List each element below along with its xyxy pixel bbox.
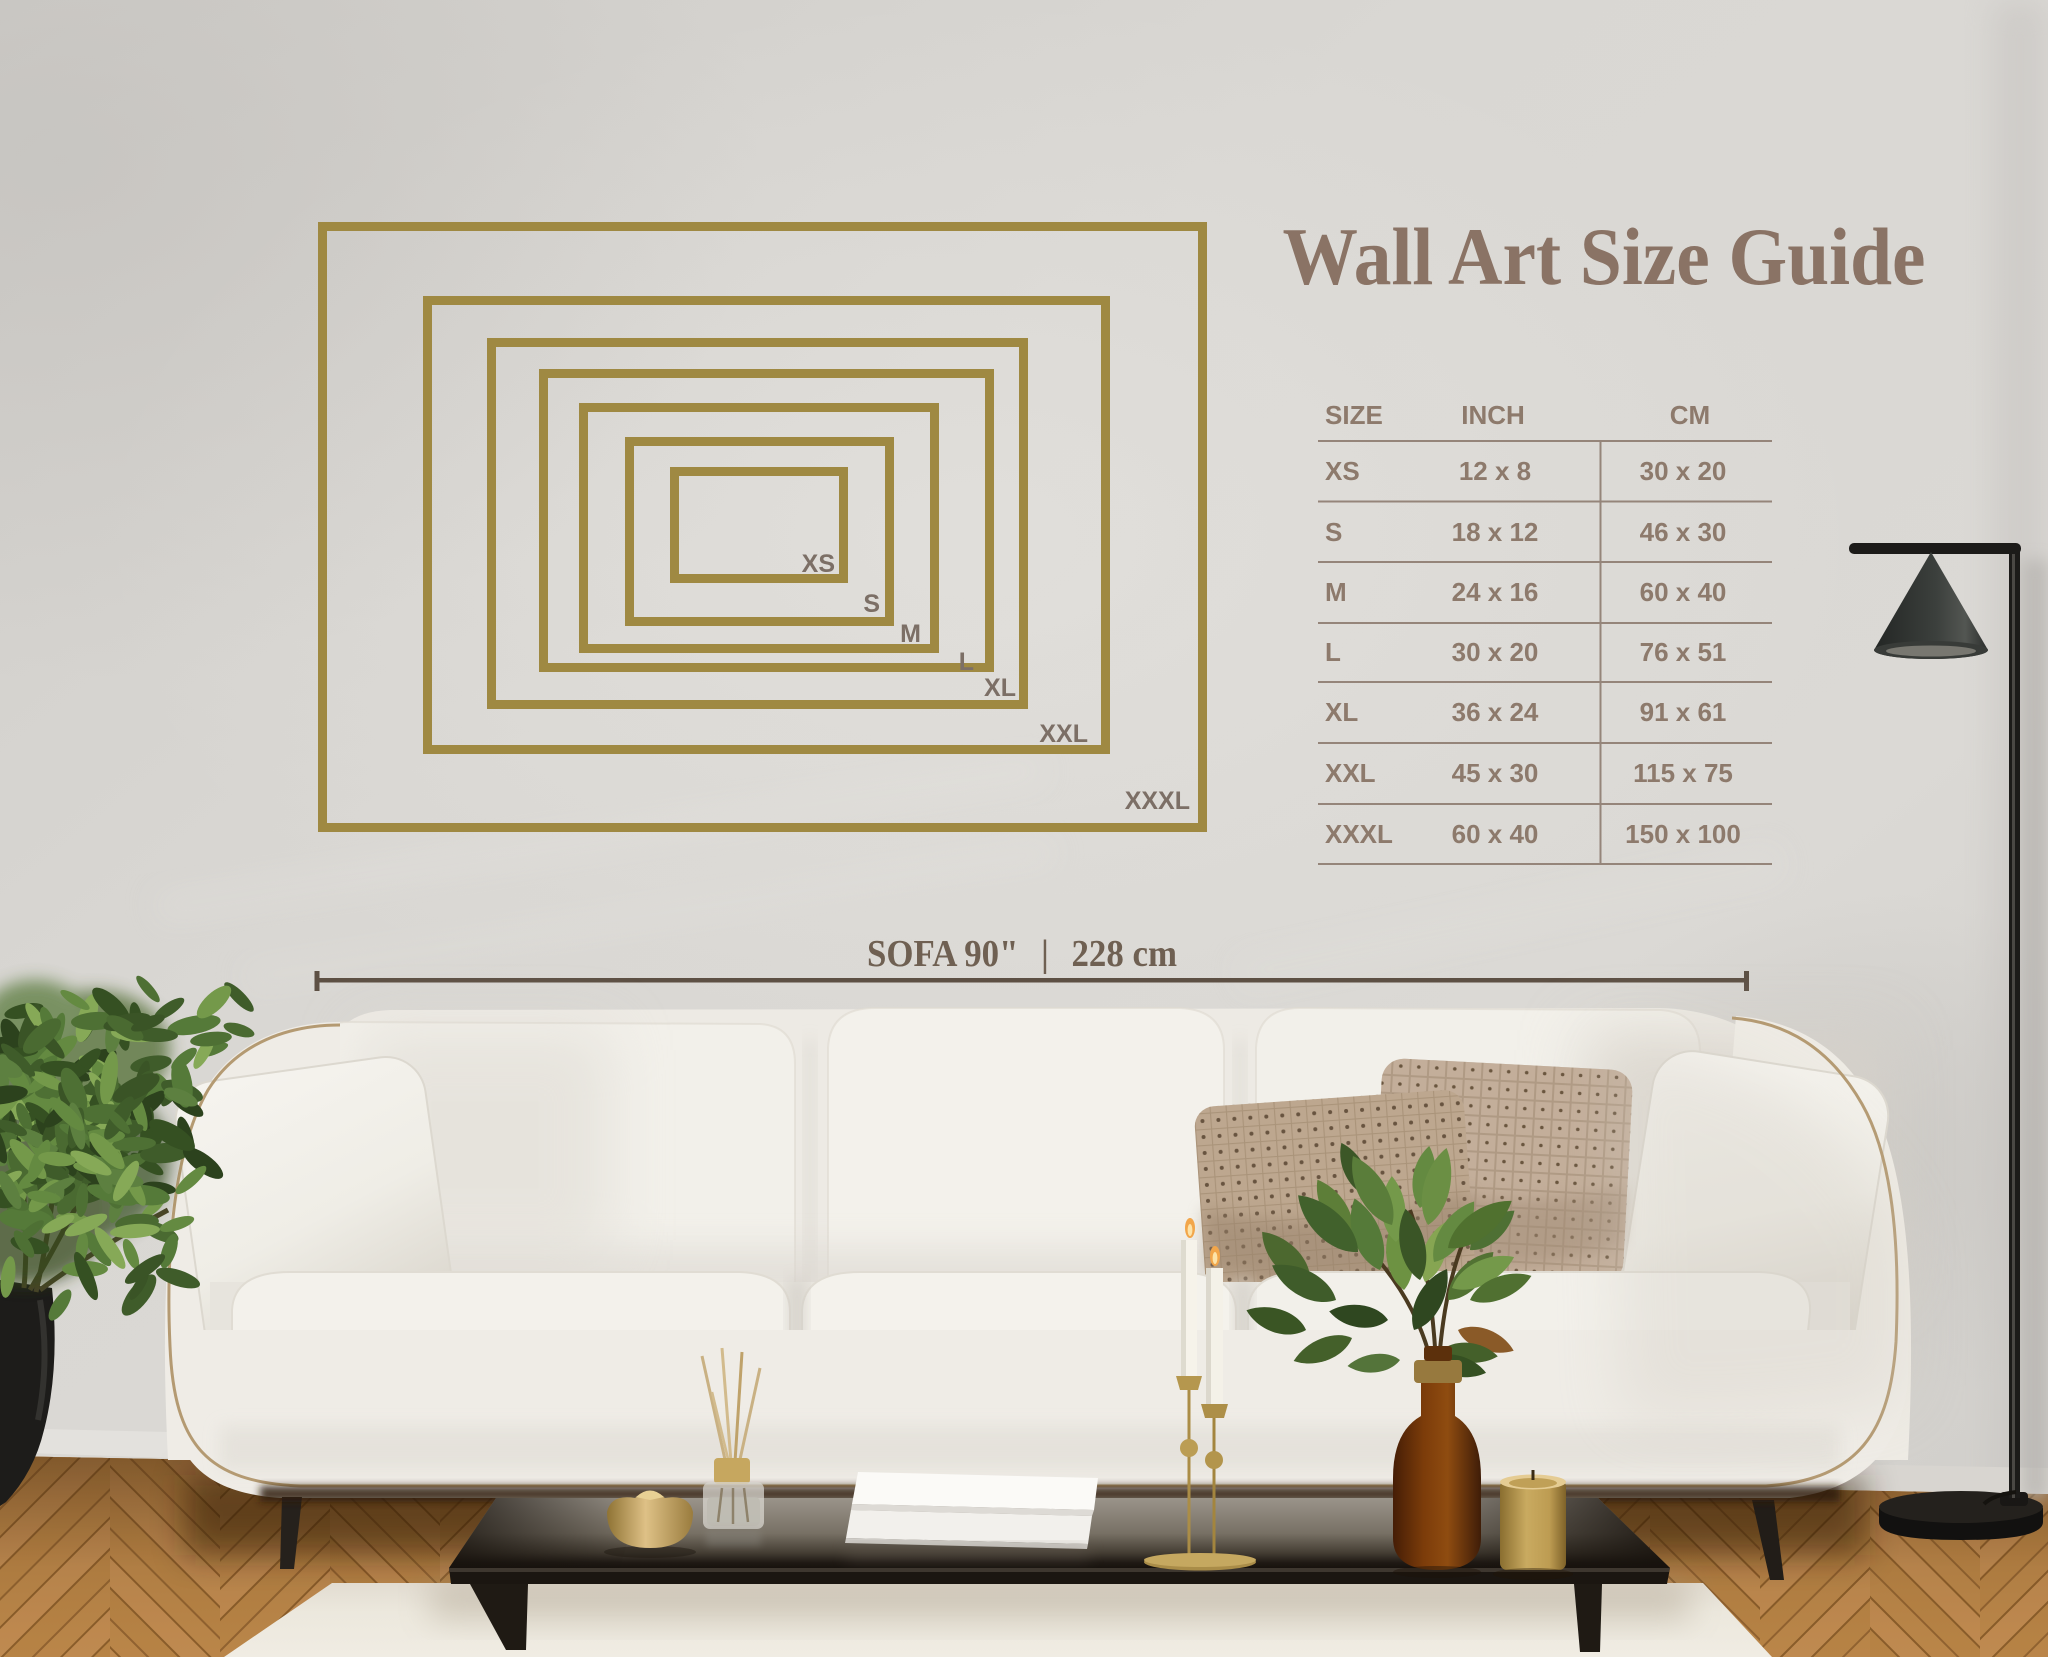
svg-text:46 x 30: 46 x 30 [1640, 517, 1727, 547]
svg-text:12 x 8: 12 x 8 [1459, 456, 1531, 486]
svg-text:CM: CM [1670, 400, 1710, 430]
svg-text:24 x 16: 24 x 16 [1452, 577, 1539, 607]
svg-text:INCH: INCH [1461, 400, 1525, 430]
svg-text:18 x 12: 18 x 12 [1452, 517, 1539, 547]
svg-text:150 x 100: 150 x 100 [1625, 819, 1741, 849]
svg-text:76 x 51: 76 x 51 [1640, 637, 1727, 667]
svg-text:XL: XL [1325, 697, 1358, 727]
svg-text:XL: XL [984, 674, 1016, 702]
svg-text:M: M [900, 620, 921, 648]
svg-text:91 x 61: 91 x 61 [1640, 697, 1727, 727]
svg-text:XXXL: XXXL [1125, 787, 1190, 815]
svg-text:XS: XS [802, 550, 835, 578]
svg-text:L: L [959, 648, 974, 676]
svg-text:SIZE: SIZE [1325, 400, 1383, 430]
svg-text:M: M [1325, 577, 1347, 607]
svg-text:36 x 24: 36 x 24 [1452, 697, 1539, 727]
svg-text:XXXL: XXXL [1325, 819, 1393, 849]
svg-text:30 x 20: 30 x 20 [1640, 456, 1727, 486]
svg-text:XXL: XXL [1039, 720, 1088, 748]
svg-text:XXL: XXL [1325, 758, 1376, 788]
svg-text:115 x 75: 115 x 75 [1633, 758, 1733, 788]
svg-text:S: S [863, 590, 880, 618]
svg-text:L: L [1325, 637, 1341, 667]
svg-text:SOFA 90" | 228 cm: SOFA 90" | 228 cm [867, 933, 1177, 975]
svg-text:XS: XS [1325, 456, 1360, 486]
svg-text:45 x 30: 45 x 30 [1452, 758, 1539, 788]
svg-text:Wall Art Size Guide: Wall Art Size Guide [1283, 211, 1926, 302]
svg-text:30 x 20: 30 x 20 [1452, 637, 1539, 667]
svg-text:S: S [1325, 517, 1342, 547]
svg-text:60 x 40: 60 x 40 [1452, 819, 1539, 849]
svg-text:60 x 40: 60 x 40 [1640, 577, 1727, 607]
